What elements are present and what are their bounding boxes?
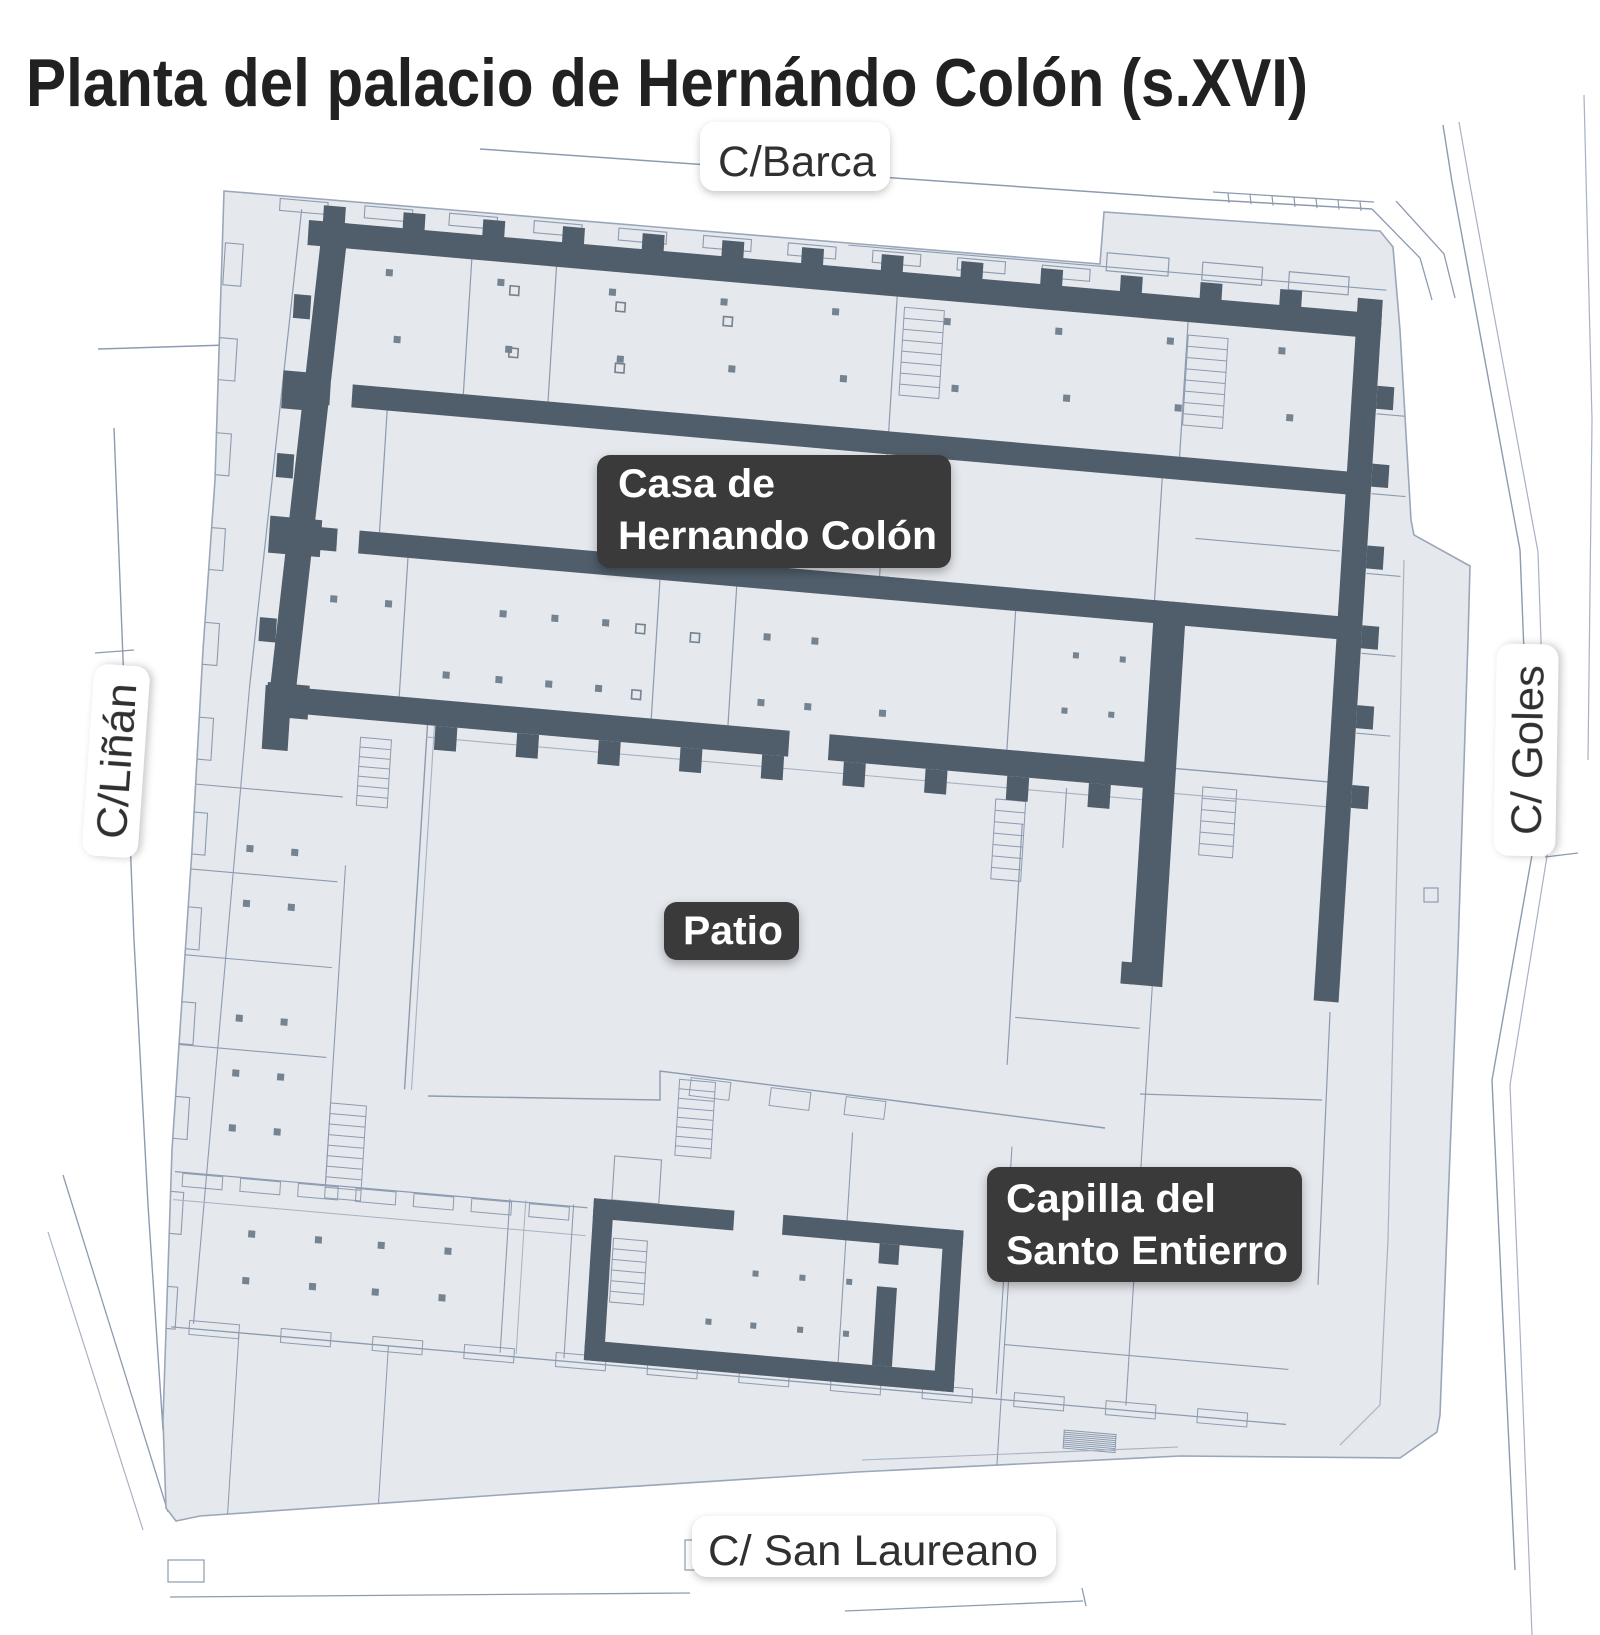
svg-text:Patio: Patio bbox=[683, 909, 783, 953]
svg-text:Hernando Colón: Hernando Colón bbox=[618, 514, 937, 558]
svg-text:C/ San Laureano: C/ San Laureano bbox=[708, 1527, 1038, 1575]
svg-text:C/Barca: C/Barca bbox=[718, 138, 876, 186]
svg-text:Capilla del: Capilla del bbox=[1006, 1177, 1216, 1221]
svg-text:C/ Goles: C/ Goles bbox=[1503, 665, 1554, 836]
svg-text:Santo Entierro: Santo Entierro bbox=[1006, 1229, 1288, 1273]
svg-text:Planta del palacio de Hernándo: Planta del palacio de Hernándo Colón (s.… bbox=[26, 45, 1308, 121]
svg-text:Casa de: Casa de bbox=[618, 462, 775, 506]
